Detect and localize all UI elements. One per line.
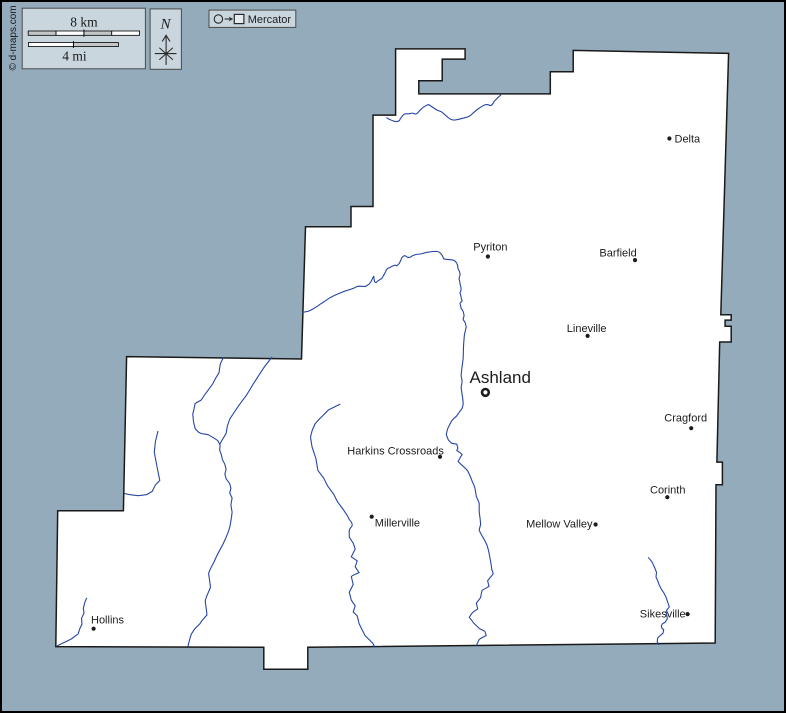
svg-text:Barfield: Barfield [599, 248, 636, 260]
svg-text:© d-maps.com: © d-maps.com [8, 5, 19, 70]
svg-text:4 mi: 4 mi [62, 49, 87, 64]
svg-text:Lineville: Lineville [567, 323, 607, 335]
svg-text:Mellow Valley: Mellow Valley [526, 519, 593, 531]
svg-text:Harkins Crossroads: Harkins Crossroads [347, 446, 444, 458]
svg-text:Corinth: Corinth [650, 485, 685, 497]
svg-text:Pyriton: Pyriton [473, 241, 507, 253]
svg-text:Mercator: Mercator [248, 14, 292, 26]
svg-text:Ashland: Ashland [470, 368, 531, 387]
svg-text:8 km: 8 km [70, 15, 98, 30]
svg-text:N: N [159, 17, 171, 33]
svg-text:Delta: Delta [675, 134, 702, 146]
svg-text:Sikesville: Sikesville [640, 609, 686, 621]
svg-text:Hollins: Hollins [91, 615, 125, 627]
svg-text:Millerville: Millerville [375, 517, 420, 529]
svg-text:Cragford: Cragford [664, 412, 707, 424]
